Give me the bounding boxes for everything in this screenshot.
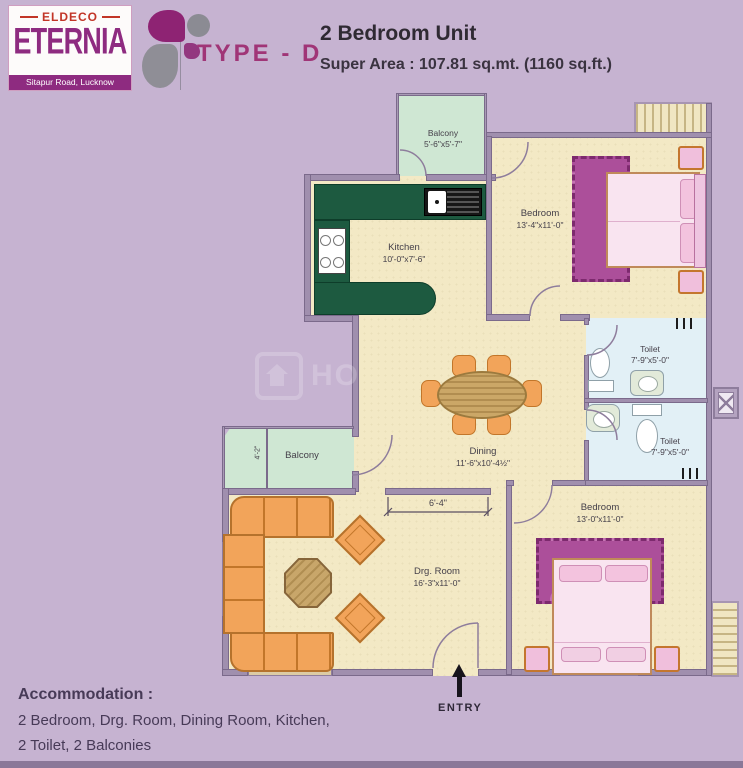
armchair-cushion: [344, 524, 375, 555]
entry-arrow-stem: [457, 677, 462, 697]
kitchen-label: Kitchen 10'-0"x7'-6": [383, 242, 426, 265]
watermark-text: HO: [311, 359, 360, 393]
sink-icon: [424, 188, 482, 216]
wall: [304, 174, 311, 322]
house-body: [270, 374, 284, 386]
shower-icon: [682, 468, 700, 479]
room-dim: 13'-4"x11'-0": [517, 220, 564, 231]
wall: [486, 136, 492, 320]
bedroom-top-bed: [606, 172, 700, 268]
wall: [706, 103, 712, 676]
wall: [396, 93, 399, 176]
wall: [486, 314, 530, 321]
wall: [584, 398, 708, 403]
basin-counter: [588, 380, 614, 392]
room-name: Toilet: [651, 436, 689, 447]
stove-icon: [318, 228, 346, 274]
house-icon: [255, 352, 303, 400]
room-dim: 7'-9"x5'-0": [651, 447, 689, 458]
brand-logo-box: ELDECO ETERNIA Sitapur Road, Lucknow: [8, 5, 132, 91]
ledge-hatch-bottom: [711, 601, 739, 677]
bed-fold-line: [554, 642, 650, 643]
drg-room-label: Drg. Room 16'-3"x11'-0": [414, 566, 461, 589]
wall: [506, 485, 512, 675]
room-name: Dining: [456, 446, 510, 458]
bottom-border-strip: [0, 761, 743, 768]
room-dim: 13'-0"x11'-0": [577, 514, 624, 525]
accommodation-line2: 2 Toilet, 2 Balconies: [18, 737, 151, 754]
bedside-table: [524, 646, 550, 672]
balcony-divider: [266, 428, 268, 490]
shaft-x-icon: [718, 392, 734, 414]
center-table-top: [286, 560, 330, 606]
wall: [222, 426, 354, 429]
bedside-table: [654, 646, 680, 672]
room-name: Bedroom: [517, 208, 564, 220]
watermark-housing: HO: [255, 352, 360, 400]
burner: [320, 235, 331, 246]
room-name: Bedroom: [577, 502, 624, 514]
washbasin-icon: [586, 404, 620, 432]
room-name: Toilet: [631, 344, 669, 355]
room-dim: 11'-6"x10'-4½": [456, 458, 510, 469]
wall: [304, 315, 358, 322]
bed-foot-panel: [606, 647, 646, 662]
accommodation-heading: Accommodation :: [18, 686, 153, 704]
bedside-table: [678, 146, 704, 170]
type-label: TYPE - D: [197, 40, 322, 68]
pillow: [605, 565, 648, 582]
wall: [222, 426, 225, 492]
wc-icon: [630, 370, 664, 396]
wall: [222, 488, 356, 495]
burner: [333, 235, 344, 246]
wall: [584, 318, 589, 325]
project-name: ETERNIA: [13, 23, 126, 58]
brand-address: Sitapur Road, Lucknow: [9, 75, 131, 90]
bed-foot-panel: [561, 647, 601, 662]
dining-label: Dining 11'-6"x10'-4½": [456, 446, 510, 469]
bedroom-bottom-label: Bedroom 13'-0"x11'-0": [577, 502, 624, 525]
wall: [396, 93, 487, 96]
balcony-left-label: Balcony: [285, 450, 319, 462]
wall: [552, 480, 586, 486]
wall: [385, 488, 491, 495]
duct-shaft: [713, 387, 739, 419]
room-dim: 10'-0"x7'-6": [383, 254, 426, 265]
house-roof: [266, 364, 288, 374]
wall: [584, 480, 708, 486]
balcony-left-dim: 4'-2": [253, 446, 262, 460]
sofa-bottom-arm: [230, 632, 334, 672]
room-name: Balcony: [424, 128, 462, 139]
burner: [320, 257, 331, 268]
brand-rule-right: [102, 16, 120, 18]
pillow: [559, 565, 602, 582]
room-name: Balcony: [285, 450, 319, 462]
armchair-cushion: [344, 602, 375, 633]
sofa-left-side: [223, 534, 265, 634]
sink-drainboard: [447, 191, 479, 213]
room-dim: 4'-2": [253, 446, 262, 460]
room-dim: 5'-6"x5'-7": [424, 139, 462, 150]
floorplan-page: ELDECO ETERNIA Sitapur Road, Lucknow TYP…: [0, 0, 743, 768]
bedside-table: [678, 270, 704, 294]
washbasin-icon: [590, 348, 610, 378]
wall: [304, 174, 400, 181]
entry-arrow-icon: [452, 664, 466, 677]
ledge-hatch-top: [634, 102, 712, 134]
wall: [332, 669, 433, 676]
balcony-top-label: Balcony 5'-6"x5'-7": [424, 128, 462, 150]
sink-bowl: [428, 191, 446, 213]
petal-icon: [142, 44, 178, 88]
wall: [486, 132, 712, 138]
petal-icon: [148, 10, 185, 42]
basin-bowl: [593, 411, 615, 428]
room-dim: 16'-3"x11'-0": [414, 578, 461, 589]
toilet-bottom-label: Toilet 7'-9"x5'-0": [651, 436, 689, 458]
accommodation-line1: 2 Bedroom, Drg. Room, Dining Room, Kitch…: [18, 712, 330, 729]
basin-counter: [632, 404, 662, 416]
dining-table: [437, 371, 527, 419]
shower-icon: [676, 318, 694, 329]
wardrobe: [694, 174, 706, 268]
room-name: Kitchen: [383, 242, 426, 254]
center-table: [284, 558, 332, 608]
kitchen-counter-peninsula: [314, 282, 436, 315]
toilet-top-label: Toilet 7'-9"x5'-0": [631, 344, 669, 366]
room-dim: 7'-9"x5'-0": [631, 355, 669, 366]
sofa-top-arm: [230, 496, 334, 538]
bed-split-line: [608, 221, 680, 222]
room-name: Drg. Room: [414, 566, 461, 578]
entry-label: ENTRY: [438, 702, 482, 714]
wc-bowl: [638, 376, 658, 392]
wall: [584, 440, 589, 485]
brand-rule-left: [20, 16, 38, 18]
passage-dim-label: 6'-4": [429, 498, 447, 508]
burner: [333, 257, 344, 268]
bedroom-bottom-bed: [552, 558, 652, 675]
petal-icon: [187, 14, 210, 37]
unit-title: 2 Bedroom Unit: [320, 22, 476, 46]
bedroom-top-label: Bedroom 13'-4"x11'-0": [517, 208, 564, 231]
super-area: Super Area : 107.81 sq.mt. (1160 sq.ft.): [320, 56, 612, 74]
